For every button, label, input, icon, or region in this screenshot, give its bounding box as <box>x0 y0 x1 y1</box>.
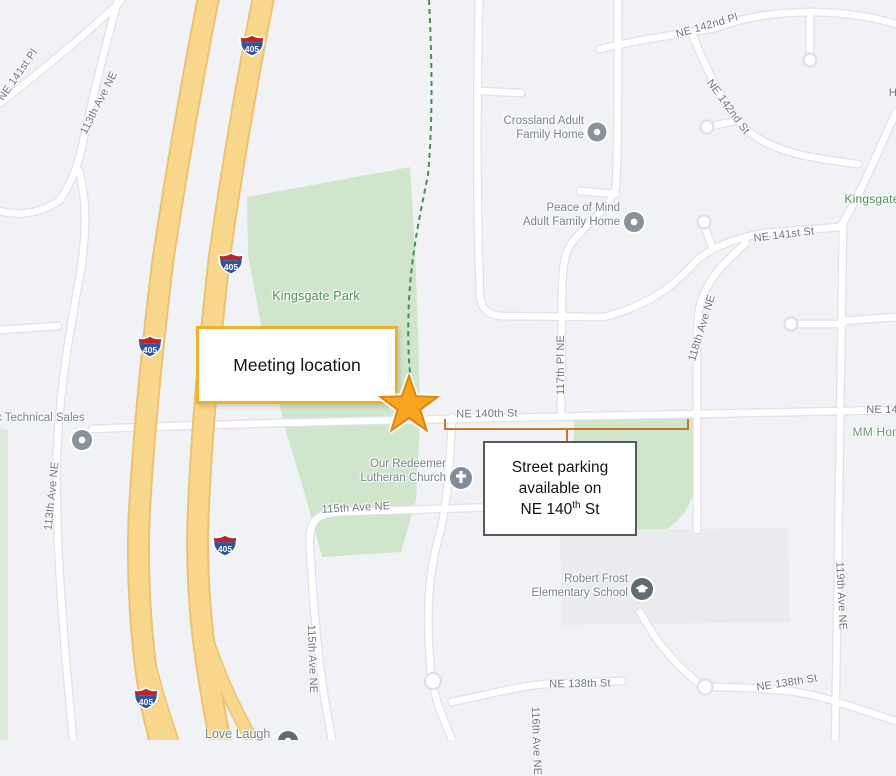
poi-label-technical-sales: c Technical Sales <box>0 411 85 425</box>
shield-route-number: 405 <box>224 262 238 272</box>
kingsgate-park-label: Kingsgate Park <box>272 289 360 303</box>
meeting-location-text: Meeting location <box>233 355 360 376</box>
school-graduation-cap-icon <box>629 576 655 602</box>
street-label: NE 140th St <box>456 407 518 420</box>
poi-line: Crossland Adult <box>503 114 584 128</box>
street-label: H <box>889 87 896 99</box>
street-label: NE 140th St <box>866 404 896 416</box>
shield-route-number: 405 <box>139 697 153 707</box>
street-label: 116th Ave NE <box>529 706 543 775</box>
street-label: 117th Pl NE <box>555 335 567 395</box>
street-label: 115th Ave NE <box>305 624 319 693</box>
poi-line: Love Laugh <box>205 727 270 741</box>
poi-label-church: Our Redeemer Lutheran Church <box>360 457 446 485</box>
parking-text-line1: Street parking <box>512 457 609 478</box>
poi-line: Adult Family Home <box>523 215 620 229</box>
shield-route-number: 405 <box>143 345 157 355</box>
business-poi-icon <box>70 428 94 452</box>
poi-line: Peace of Mind <box>523 201 620 215</box>
shield-route-number: 405 <box>245 44 259 54</box>
poi-label-crossland: Crossland Adult Family Home <box>503 114 584 142</box>
poi-line: c Technical Sales <box>0 411 85 425</box>
i405-shield: 405 <box>212 534 238 557</box>
parking-text-line2: available on <box>519 478 602 499</box>
business-label-partial: MM Homes <box>853 425 896 439</box>
annotated-map-screenshot: { "map": { "shield": "405", "street_labe… <box>0 0 896 740</box>
street-parking-callout: Street parking available on NE 140th St <box>483 441 637 536</box>
poi-line: Our Redeemer <box>360 457 446 471</box>
meeting-location-callout: Meeting location <box>196 326 398 404</box>
adult-family-home-icon <box>622 210 646 234</box>
street-label: NE 138th St <box>549 677 611 690</box>
shield-route-number: 405 <box>218 544 232 554</box>
poi-label-peace-of-mind: Peace of Mind Adult Family Home <box>523 201 620 229</box>
park-label-partial: Kingsgate <box>844 192 896 206</box>
poi-label-school: Robert Frost Elementary School <box>531 572 628 600</box>
parking-text-line3: NE 140th St <box>521 499 600 520</box>
poi-line: Elementary School <box>531 586 628 600</box>
daycare-poi-icon <box>276 729 300 740</box>
map-canvas: 405 405 405 405 405 <box>0 0 896 740</box>
poi-label-love-laugh: Love Laugh <box>205 727 270 741</box>
adult-family-home-icon <box>586 121 609 144</box>
church-cross-icon <box>448 465 474 491</box>
poi-line: Robert Frost <box>531 572 628 586</box>
poi-line: Lutheran Church <box>360 471 446 485</box>
poi-line: Family Home <box>503 128 584 142</box>
